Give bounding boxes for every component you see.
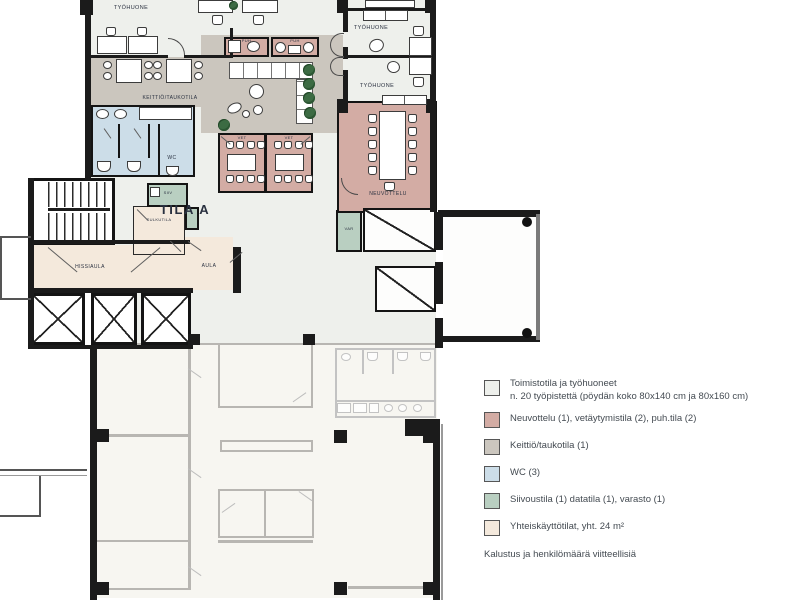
table — [275, 154, 304, 171]
chair — [137, 27, 147, 36]
room-label-puh-1: PUH — [229, 40, 265, 44]
legend-item: Siivoustila (1) datatila (1), varasto (1… — [484, 493, 665, 509]
chair — [144, 72, 153, 80]
column — [423, 430, 436, 443]
chair — [106, 27, 116, 36]
sink — [96, 109, 109, 119]
room-label-keittio: KEITTIÖ/TAUKOTILA — [120, 96, 220, 101]
plant-icon — [304, 107, 316, 119]
chair — [408, 114, 417, 123]
wall — [264, 489, 266, 538]
legend-item: Keittiö/taukotila (1) — [484, 439, 589, 455]
legend-item: Toimistotila ja työhuoneet n. 20 työpist… — [484, 377, 748, 403]
wall — [158, 124, 160, 177]
desk — [242, 0, 278, 13]
booth-chair — [303, 42, 314, 53]
column — [426, 99, 436, 113]
toilet — [397, 352, 408, 361]
toilet — [97, 161, 111, 172]
chair — [368, 127, 377, 136]
cabinet — [365, 0, 415, 8]
chair — [253, 15, 264, 25]
plant-icon — [303, 78, 315, 90]
chair — [413, 26, 424, 36]
room-adjacent-east — [443, 215, 538, 340]
wall — [435, 262, 443, 304]
chair — [284, 175, 292, 183]
desk — [128, 36, 158, 54]
wall — [148, 124, 150, 158]
column — [337, 99, 348, 113]
wall — [392, 348, 394, 374]
room-label-hissiaula: HISSIAULA — [55, 265, 125, 270]
elevator-shaft — [31, 293, 85, 345]
chair — [413, 77, 424, 87]
door-arc — [330, 57, 344, 76]
pouf — [253, 105, 263, 115]
legend-item: Yhteiskäyttötilat, yht. 24 m² — [484, 520, 624, 536]
exterior-line — [0, 236, 2, 300]
desk — [198, 0, 233, 13]
wall — [28, 178, 34, 348]
legend-label-line2: n. 20 työpistettä (pöydän koko 80x140 cm… — [510, 390, 748, 403]
exterior-line — [0, 236, 31, 238]
table — [166, 59, 192, 83]
wall — [348, 586, 425, 589]
chair — [368, 153, 377, 162]
pouf — [242, 110, 250, 118]
legend-label: Yhteiskäyttötilat, yht. 24 m² — [510, 520, 624, 533]
chair — [153, 72, 162, 80]
shaft-room — [375, 266, 436, 312]
room-label-sulkutila: SULKUTILA — [138, 219, 180, 223]
stairs — [48, 213, 110, 242]
elevator-shaft — [91, 293, 137, 345]
floor-plan: TYÖHUONE KEITTIÖ/TAUKOTILA PUH PUH TYÖHU… — [0, 0, 800, 600]
chair — [408, 127, 417, 136]
chair — [295, 175, 303, 183]
legend-swatch-office — [484, 380, 500, 396]
sink — [341, 353, 351, 361]
chair — [212, 15, 223, 25]
legend-label: WC (3) — [510, 466, 540, 479]
chair — [408, 153, 417, 162]
counter — [139, 107, 192, 120]
wall — [90, 345, 97, 600]
stairs — [48, 182, 110, 207]
wall — [435, 212, 443, 250]
chair — [194, 61, 203, 69]
column — [80, 0, 93, 15]
room-label-puh-2: PUH — [276, 40, 314, 44]
plant-icon — [303, 92, 315, 104]
chair — [103, 72, 112, 80]
counter — [337, 403, 351, 413]
wall — [184, 55, 233, 58]
toilet — [420, 352, 431, 361]
legend-label: Toimistotila ja työhuoneet — [510, 377, 748, 390]
column — [425, 0, 436, 13]
chair — [305, 175, 313, 183]
column — [334, 582, 347, 595]
chair — [368, 166, 377, 175]
sink — [114, 109, 127, 119]
room-label-vet-2: VET — [270, 137, 308, 141]
chair — [408, 140, 417, 149]
chair — [368, 114, 377, 123]
chair — [274, 141, 282, 149]
room-label-aula: AULA — [190, 264, 228, 269]
wall — [91, 55, 168, 58]
legend-label: Siivoustila (1) datatila (1), varasto (1… — [510, 493, 665, 506]
wall — [96, 434, 190, 437]
column — [303, 334, 315, 345]
room-label-tyohuone-2: TYÖHUONE — [346, 26, 396, 32]
column — [337, 0, 348, 13]
plant-icon — [218, 119, 230, 131]
legend-swatch-meeting — [484, 412, 500, 428]
chair — [305, 141, 313, 149]
legend-item: Neuvottelu (1), vetäytymistila (2), puh.… — [484, 412, 696, 428]
column — [96, 582, 109, 595]
legend-swatch-common — [484, 520, 500, 536]
elevator-shaft — [141, 293, 191, 345]
chair — [103, 61, 112, 69]
cabinet-divider — [404, 96, 405, 104]
legend-swatch-service — [484, 493, 500, 509]
chair — [274, 175, 282, 183]
sink — [384, 404, 393, 412]
room-label-neuvottelu: NEUVOTTELU — [345, 192, 431, 197]
stair-landing-wall — [48, 208, 110, 211]
conference-table — [379, 111, 406, 180]
chair — [236, 141, 244, 149]
faint-room — [95, 540, 190, 590]
chair — [153, 61, 162, 69]
legend-item: WC (3) — [484, 466, 540, 482]
wall — [536, 214, 540, 340]
cabinet-divider — [385, 11, 386, 20]
room-label-var: VAR — [339, 228, 360, 232]
wall — [438, 210, 540, 217]
toilet — [127, 161, 141, 172]
sink — [413, 404, 422, 412]
chair — [194, 72, 203, 80]
chair — [247, 175, 255, 183]
wall — [335, 400, 436, 402]
wall — [441, 424, 443, 600]
exterior-line — [0, 515, 41, 517]
chair — [226, 175, 234, 183]
wall — [118, 124, 120, 158]
area-title-tila-a: TILA A — [143, 203, 227, 216]
counter — [369, 403, 379, 413]
table — [227, 154, 256, 171]
column — [334, 430, 347, 443]
wall — [218, 540, 313, 543]
exterior-line — [39, 476, 41, 517]
column — [423, 582, 436, 595]
wall — [362, 348, 364, 374]
sofa — [229, 62, 313, 79]
column — [188, 334, 200, 345]
room-label-vet-1: VET — [223, 137, 261, 141]
chair — [257, 175, 265, 183]
desk — [97, 36, 127, 54]
chair — [384, 182, 395, 191]
chair — [257, 141, 265, 149]
shaft-room — [363, 208, 436, 252]
exterior-line — [0, 298, 31, 300]
desk — [409, 57, 432, 75]
desk — [409, 37, 432, 56]
round-column — [522, 217, 532, 227]
exterior-line — [0, 469, 87, 471]
wall — [28, 345, 193, 349]
faint-room — [218, 489, 314, 538]
chair — [284, 141, 292, 149]
legend-label: Keittiö/taukotila (1) — [510, 439, 589, 452]
chair — [408, 166, 417, 175]
table — [116, 59, 142, 83]
room-label-wc: WC — [160, 156, 184, 161]
column — [96, 429, 109, 442]
exterior-line — [0, 475, 87, 476]
legend-swatch-wc — [484, 466, 500, 482]
wall — [28, 240, 190, 244]
booth-chair — [275, 42, 286, 53]
faint-shelf — [220, 440, 313, 452]
room-label-tyohuone-3: TYÖHUONE — [352, 84, 402, 90]
room-label-tyohuone-1: TYÖHUONE — [101, 6, 161, 12]
wall — [85, 0, 91, 180]
wall — [433, 419, 440, 600]
room-label-siiv: SIIV — [154, 192, 183, 196]
chair — [144, 61, 153, 69]
legend-label: Neuvottelu (1), vetäytymistila (2), puh.… — [510, 412, 696, 425]
legend-note: Kalustus ja henkilömäärä viitteellisiä — [484, 549, 636, 560]
chair — [236, 175, 244, 183]
toilet — [367, 352, 378, 361]
legend-swatch-kitchen — [484, 439, 500, 455]
wall — [28, 288, 193, 293]
booth-table — [288, 45, 301, 54]
chair — [247, 141, 255, 149]
round-column — [522, 328, 532, 338]
chair — [368, 140, 377, 149]
wall — [435, 318, 443, 348]
round-table — [249, 84, 264, 99]
counter — [353, 403, 367, 413]
sink — [398, 404, 407, 412]
plant-icon — [229, 1, 238, 10]
plant-icon — [303, 64, 315, 76]
